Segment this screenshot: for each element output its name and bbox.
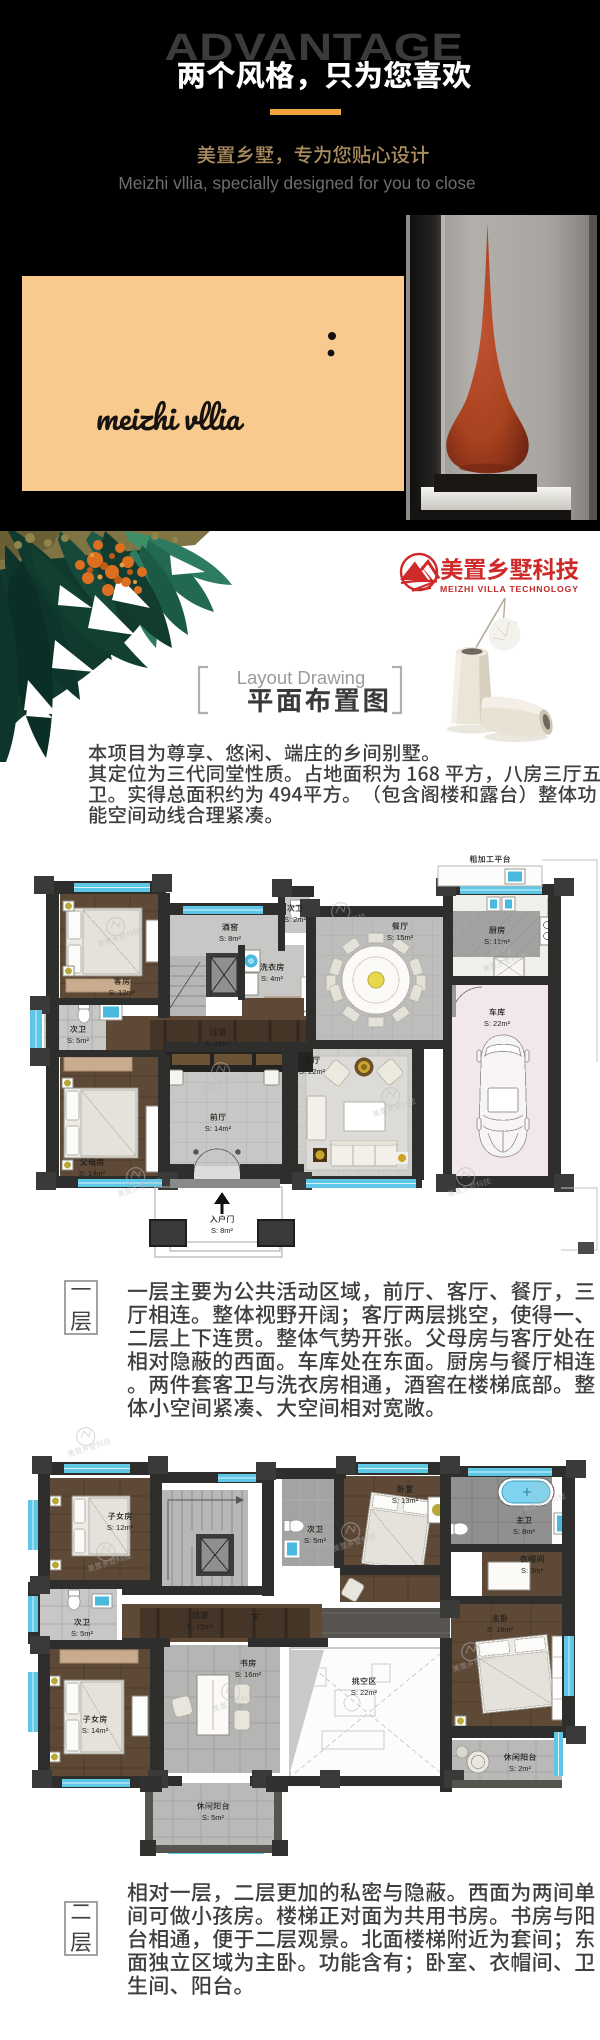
svg-text:Meizhi vllia, specially design: Meizhi vllia, specially designed for you… — [118, 173, 475, 193]
svg-text:MEIZHI VILLA TECHNOLOGY: MEIZHI VILLA TECHNOLOGY — [440, 584, 579, 594]
svg-text:S: 22m²: S: 22m² — [484, 1019, 511, 1028]
svg-text:S: 8m²: S: 8m² — [219, 934, 242, 943]
svg-text:S: 14m²: S: 14m² — [79, 1169, 106, 1178]
svg-text:S: 12m²: S: 12m² — [107, 1523, 134, 1532]
svg-text:S: 5m²: S: 5m² — [71, 1629, 94, 1638]
svg-text:S: 2m²: S: 2m² — [509, 1764, 532, 1773]
svg-text:S: 8m²: S: 8m² — [211, 1226, 234, 1235]
svg-text:S: 5m²: S: 5m² — [304, 1536, 327, 1545]
svg-text:S: 14m²: S: 14m² — [82, 1726, 109, 1735]
svg-text:S: 14m²: S: 14m² — [205, 1124, 232, 1133]
svg-text:S: 12m²: S: 12m² — [109, 988, 136, 997]
svg-text:Layout Drawing: Layout Drawing — [237, 667, 366, 688]
svg-text:S: 22m²: S: 22m² — [299, 1067, 326, 1076]
svg-text:S: 15m²: S: 15m² — [387, 933, 414, 942]
svg-text:ADVANTAGE: ADVANTAGE — [164, 26, 463, 68]
svg-text:S: 15m²: S: 15m² — [187, 1622, 214, 1631]
svg-text:S: 5m²: S: 5m² — [202, 1813, 225, 1822]
svg-text:S: 2m²: S: 2m² — [284, 915, 307, 924]
svg-text:S: 3m²: S: 3m² — [521, 1566, 544, 1575]
svg-text:S: 22m²: S: 22m² — [351, 1688, 378, 1697]
svg-text:S: 13m²: S: 13m² — [392, 1496, 419, 1505]
svg-text:S: 4m²: S: 4m² — [261, 974, 284, 983]
svg-text:S: 16m²: S: 16m² — [487, 1625, 514, 1634]
svg-text:S: 16m²: S: 16m² — [235, 1670, 262, 1679]
svg-text:S: 15m²: S: 15m² — [205, 1039, 232, 1048]
svg-text:S: 8m²: S: 8m² — [513, 1527, 536, 1536]
svg-text:S: 5m²: S: 5m² — [67, 1036, 90, 1045]
